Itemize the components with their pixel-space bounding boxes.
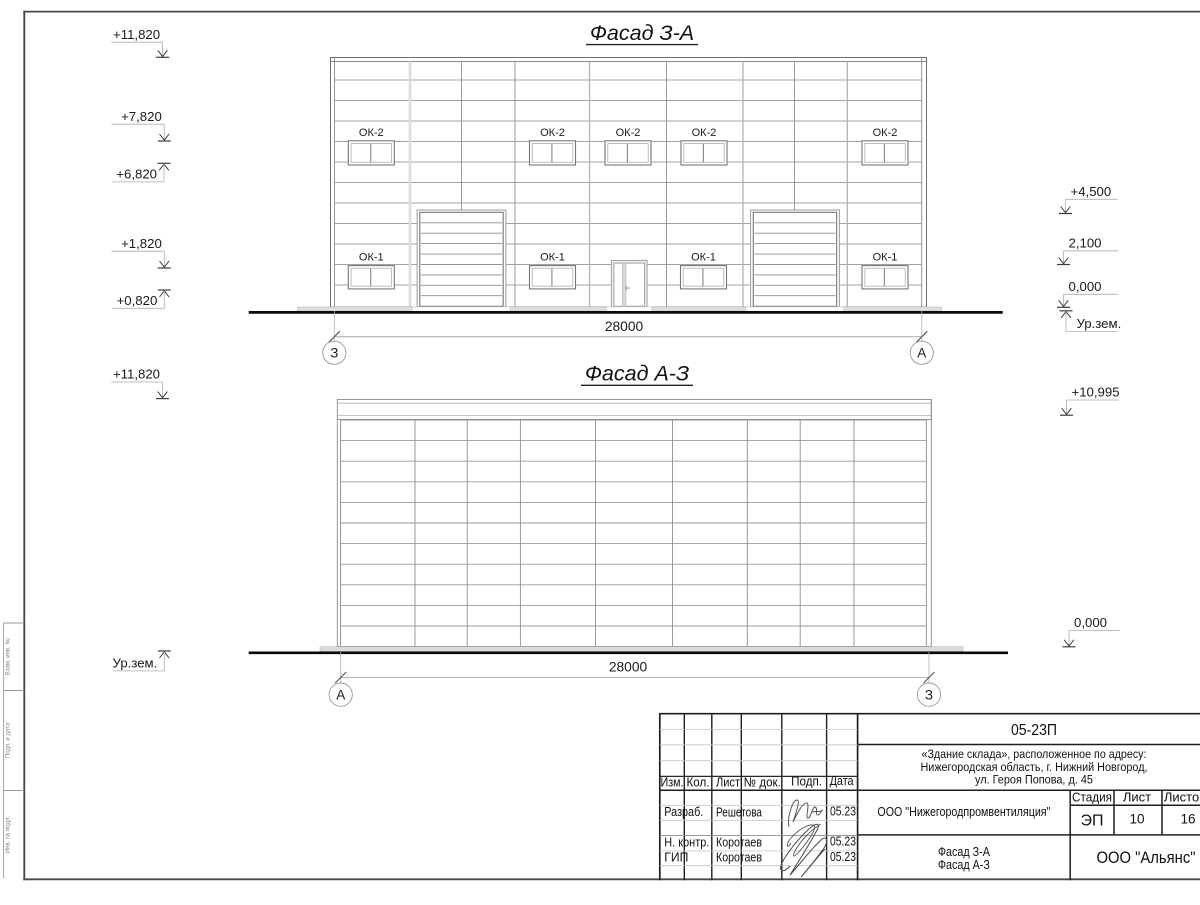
svg-text:+11,820: +11,820 (113, 367, 160, 382)
svg-text:Взам. инв. №: Взам. инв. № (5, 638, 12, 675)
svg-text:+11,820: +11,820 (113, 27, 160, 42)
svg-text:05.23: 05.23 (830, 834, 856, 849)
svg-text:2,100: 2,100 (1069, 235, 1102, 250)
svg-text:+4,500: +4,500 (1071, 184, 1112, 199)
svg-text:Подп.: Подп. (791, 774, 822, 789)
svg-text:ЭП: ЭП (1081, 812, 1104, 829)
svg-text:Изм.: Изм. (661, 774, 684, 789)
svg-text:№ док.: № док. (744, 774, 781, 789)
svg-text:А: А (336, 687, 345, 702)
svg-text:ОК-1: ОК-1 (691, 252, 716, 264)
svg-text:Дата: Дата (830, 773, 855, 788)
svg-text:+7,820: +7,820 (121, 109, 162, 124)
svg-text:ООО "Альянс": ООО "Альянс" (1097, 849, 1196, 867)
svg-text:10: 10 (1129, 812, 1144, 827)
svg-text:З: З (925, 687, 933, 702)
svg-text:+6,820: +6,820 (116, 167, 157, 182)
svg-text:ОК-2: ОК-2 (616, 127, 641, 139)
svg-text:05.23: 05.23 (830, 849, 856, 864)
svg-text:А: А (917, 346, 926, 361)
svg-text:28000: 28000 (609, 659, 648, 674)
svg-text:Коротаев: Коротаев (716, 834, 762, 849)
svg-text:Кол.: Кол. (687, 774, 710, 789)
svg-text:ОК-2: ОК-2 (692, 127, 717, 139)
svg-text:Фасад А-З: Фасад А-З (938, 857, 990, 872)
svg-text:+1,820: +1,820 (121, 236, 162, 251)
svg-text:+10,995: +10,995 (1072, 385, 1120, 400)
svg-text:ОК-2: ОК-2 (359, 127, 384, 139)
svg-text:Разраб.: Разраб. (664, 804, 703, 819)
svg-text:0,000: 0,000 (1074, 615, 1107, 630)
svg-text:ул. Героя Попова, д. 45: ул. Героя Попова, д. 45 (975, 772, 1093, 786)
svg-text:05-23П: 05-23П (1011, 722, 1057, 739)
svg-text:ООО "Нижегородпромвентиляция": ООО "Нижегородпромвентиляция" (877, 804, 1050, 819)
svg-text:Инв. № подл.: Инв. № подл. (5, 815, 12, 853)
svg-text:Лист: Лист (716, 774, 740, 789)
svg-text:Решетова: Решетова (716, 805, 763, 820)
svg-text:05.23: 05.23 (830, 804, 856, 819)
svg-text:+0,820: +0,820 (117, 293, 158, 308)
svg-text:Стадия: Стадия (1072, 790, 1112, 805)
svg-text:ОК-1: ОК-1 (359, 252, 384, 264)
svg-text:28000: 28000 (605, 319, 644, 334)
svg-text:Подп. и дата: Подп. и дата (6, 722, 12, 758)
svg-text:ГИП: ГИП (664, 849, 688, 864)
svg-text:16: 16 (1180, 812, 1195, 827)
svg-text:Фасад А-З: Фасад А-З (585, 361, 689, 385)
svg-text:Лист: Лист (1123, 790, 1151, 805)
svg-text:ОК-2: ОК-2 (540, 127, 565, 139)
svg-text:ОК-2: ОК-2 (873, 127, 898, 139)
svg-text:Листов: Листов (1164, 790, 1200, 805)
svg-text:З: З (330, 346, 338, 361)
svg-text:ОК-1: ОК-1 (873, 252, 898, 264)
svg-text:Коротаев: Коротаев (716, 849, 762, 864)
svg-text:Ур.зем.: Ур.зем. (113, 656, 158, 671)
svg-text:Ур.зем.: Ур.зем. (1077, 316, 1122, 331)
svg-text:Фасад З-А: Фасад З-А (590, 21, 694, 45)
svg-text:ОК-1: ОК-1 (540, 252, 565, 264)
svg-text:0,000: 0,000 (1069, 279, 1102, 294)
svg-text:Н. контр.: Н. контр. (664, 834, 709, 849)
